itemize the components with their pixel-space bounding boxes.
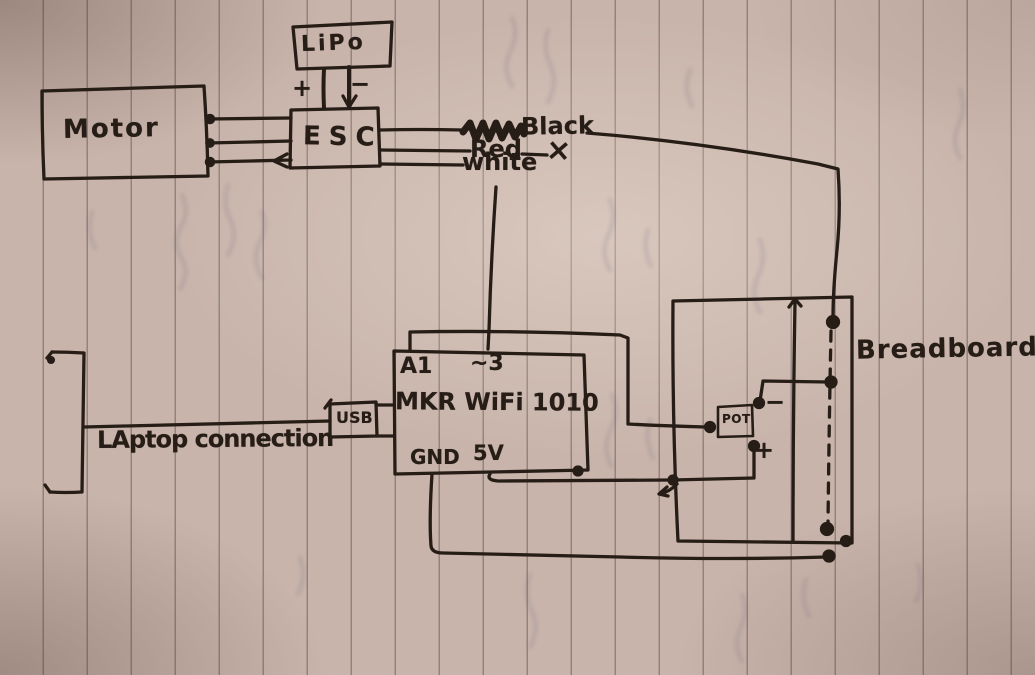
dot-motor-terminal-3	[206, 158, 213, 165]
wire-white-label: white	[462, 150, 537, 174]
dot-a1-pot	[706, 423, 715, 432]
pin-a1-label: A1	[400, 356, 432, 378]
dot-mkr-corner	[574, 467, 582, 475]
pin-gnd-label: GND	[410, 447, 460, 467]
wire-black-to-breadboard	[587, 133, 839, 318]
laptop-connection-label: LAptop connection	[97, 426, 333, 452]
dot-pot-minus	[755, 399, 764, 408]
esc-label: ESC	[303, 123, 383, 150]
laptop-bracket-hook-bottom	[45, 485, 50, 492]
wire-white-to-d3	[488, 187, 496, 349]
dot-breadboard-bottom-edge	[842, 537, 851, 546]
lipo-plus-label: +	[292, 76, 312, 100]
breadboard-label: Breadboard	[856, 334, 1035, 363]
usb-label: USB	[336, 410, 373, 426]
wire-motor-esc-1	[208, 118, 291, 119]
dot-gnd-breadboard	[824, 551, 834, 561]
wire-lipo-plus	[324, 69, 325, 108]
lipo-label: LiPo	[301, 32, 367, 56]
wire-motor-esc-2	[208, 141, 291, 143]
dot-black-breadboard	[828, 317, 839, 328]
laptop-bracket	[50, 352, 84, 493]
pot-minus-label: −	[765, 390, 785, 414]
breadboard-rail-dashed	[828, 331, 831, 524]
wire-gnd-to-breadboard	[430, 474, 826, 559]
pot-label: POT	[722, 413, 751, 425]
motor-label: Motor	[63, 115, 160, 143]
dot-rail-bottom	[822, 524, 833, 535]
breadboard-rail-divider	[793, 302, 795, 540]
lipo-minus-label: −	[350, 72, 370, 96]
pin-d3-label: ~3	[470, 353, 504, 375]
wire-esc-black	[380, 130, 462, 131]
notebook-paper: Motor ESC LiPo + − Black Red × white A1 …	[0, 0, 1035, 675]
red-crossed-out-mark: ×	[545, 135, 572, 167]
mkr-board-label: MKR WiFi 1010	[395, 389, 599, 414]
pot-plus-label: +	[754, 438, 774, 462]
pin-5v-label: 5V	[473, 443, 504, 464]
wire-5v-to-pot	[489, 474, 754, 481]
wire-esc-white	[380, 164, 463, 165]
dot-motor-terminal-2	[207, 140, 213, 146]
dot-motor-terminal-1	[206, 115, 213, 122]
breadboard-outline	[673, 297, 852, 543]
dot-laptop-top	[49, 358, 54, 363]
wire-esc-red	[380, 150, 470, 151]
